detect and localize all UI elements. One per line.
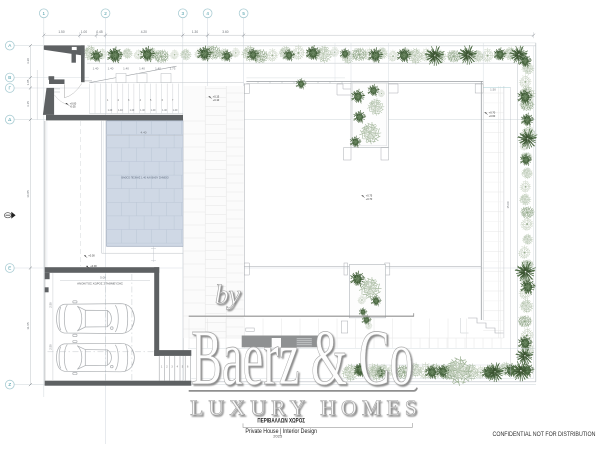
svg-text:+0.60: +0.60 (489, 114, 496, 118)
svg-text:1: 1 (43, 11, 46, 16)
svg-text:by: by (215, 280, 241, 310)
svg-text:1.40: 1.40 (155, 67, 161, 71)
svg-text:ΑΝΟΙΚΤΟΣ ΧΩΡΟΣ ΣΤΑΘΜΕΥΣΗΣ: ΑΝΟΙΚΤΟΣ ΧΩΡΟΣ ΣΤΑΘΜΕΥΣΗΣ (77, 282, 123, 286)
svg-text:Δ: Δ (8, 117, 11, 122)
svg-text:2.50: 2.50 (49, 302, 53, 308)
svg-text:+0.00: +0.00 (88, 254, 95, 258)
svg-text:4.20: 4.20 (141, 30, 147, 34)
svg-text:1.40: 1.40 (140, 109, 145, 112)
svg-text:3.60: 3.60 (222, 30, 228, 34)
svg-text:Ε: Ε (8, 266, 11, 271)
svg-text:1.40: 1.40 (151, 109, 156, 112)
svg-text:1.40: 1.40 (93, 67, 99, 71)
svg-text:1.40: 1.40 (118, 109, 123, 112)
svg-text:1.40: 1.40 (139, 67, 145, 71)
svg-text:4.40: 4.40 (140, 130, 146, 134)
svg-text:ΠΕΡΙΒΑΛΛΩΝ ΧΩΡΟΣ: ΠΕΡΙΒΑΛΛΩΝ ΧΩΡΟΣ (257, 417, 305, 424)
svg-text:1.40: 1.40 (108, 67, 114, 71)
svg-text:15.00: 15.00 (506, 201, 510, 208)
svg-text:1.40: 1.40 (162, 109, 167, 112)
svg-text:Baerz & Co: Baerz & Co (191, 315, 413, 402)
svg-text:1.05: 1.05 (26, 79, 30, 85)
svg-text:11.65: 11.65 (26, 322, 30, 330)
svg-text:1.40: 1.40 (173, 109, 178, 112)
svg-text:ΒΑΘΟΣ ΠΙΣΙΝΑΣ 1.40 ΚΑΙ ΒΑΘΥ ΣΗ: ΒΑΘΟΣ ΠΙΣΙΝΑΣ 1.40 ΚΑΙ ΒΑΘΥ ΣΗΜΕΙΟ (121, 177, 168, 180)
svg-text:3: 3 (182, 11, 185, 16)
svg-text:+0.70: +0.70 (366, 197, 373, 201)
svg-text:2: 2 (104, 11, 107, 16)
svg-text:1.30: 1.30 (192, 30, 198, 34)
svg-text:+0.00: +0.00 (90, 264, 97, 268)
svg-text:-0.05: -0.05 (70, 105, 76, 109)
svg-text:1.40: 1.40 (123, 67, 129, 71)
svg-text:Ζ: Ζ (8, 382, 11, 387)
svg-text:3.15: 3.15 (26, 101, 30, 107)
svg-text:4: 4 (206, 11, 209, 16)
svg-text:+0.10: +0.10 (213, 98, 220, 102)
svg-text:1.50: 1.50 (58, 30, 64, 34)
svg-text:1.00: 1.00 (81, 30, 87, 34)
svg-text:1.50: 1.50 (490, 88, 496, 92)
svg-text:1.40: 1.40 (108, 109, 113, 112)
svg-text:1.73: 1.73 (170, 67, 176, 71)
svg-text:3.20: 3.20 (26, 58, 30, 64)
svg-text:CONFIDENTIAL NOT FOR DISTRIBUT: CONFIDENTIAL NOT FOR DISTRIBUTION (493, 431, 596, 438)
svg-text:Β: Β (8, 75, 11, 80)
svg-text:1.40: 1.40 (130, 109, 135, 112)
svg-text:14.85: 14.85 (26, 190, 30, 198)
svg-text:0.45: 0.45 (96, 30, 102, 34)
svg-text:5: 5 (242, 11, 245, 16)
svg-text:2.50: 2.50 (49, 344, 53, 350)
svg-text:2025: 2025 (273, 434, 283, 439)
